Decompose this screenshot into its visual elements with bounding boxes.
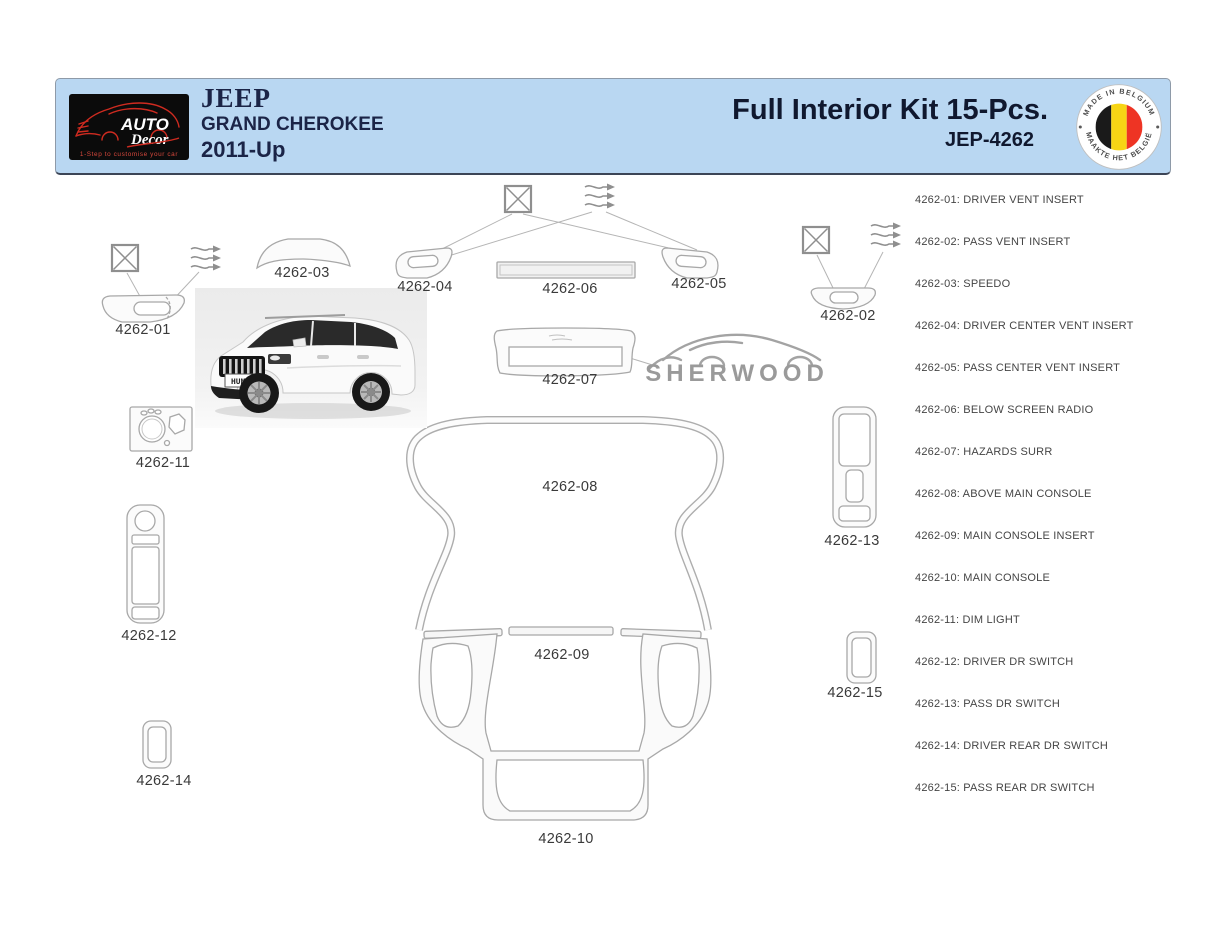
cut-mark-icon [803, 227, 829, 253]
part-label-14: 4262-14 [116, 773, 212, 789]
parts-list-item: 4262-04: DRIVER CENTER VENT INSERT [915, 305, 1134, 347]
parts-list-item: 4262-09: MAIN CONSOLE INSERT [915, 515, 1134, 557]
vehicle-photo: HUM3D [195, 288, 427, 428]
parts-list-item: 4262-07: HAZARDS SURR [915, 431, 1134, 473]
part-label-03: 4262-03 [254, 265, 350, 281]
part-label-12: 4262-12 [101, 628, 197, 644]
part-above-main-console [410, 420, 720, 630]
product-sheet: AUTO Decor 1-Step to customise your car … [0, 0, 1228, 950]
parts-list-item: 4262-13: PASS DR SWITCH [915, 683, 1134, 725]
part-label-11: 4262-11 [115, 455, 211, 471]
parts-list-item: 4262-06: BELOW SCREEN RADIO [915, 389, 1134, 431]
part-dim-light [130, 407, 192, 451]
part-pass-vent-insert [811, 288, 875, 309]
part-pass-rear-door-switch [847, 632, 876, 683]
part-driver-center-vent-insert [396, 248, 452, 278]
front-wheel-icon [239, 373, 279, 413]
part-driver-door-switch [127, 505, 164, 623]
part-speedo [257, 239, 350, 268]
rear-wheel-icon [352, 373, 390, 411]
part-label-01: 4262-01 [95, 322, 191, 338]
parts-list-item: 4262-12: DRIVER DR SWITCH [915, 641, 1134, 683]
part-label-07: 4262-07 [522, 372, 618, 388]
parts-list-item: 4262-08: ABOVE MAIN CONSOLE [915, 473, 1134, 515]
parts-list-item: 4262-02: PASS VENT INSERT [915, 221, 1134, 263]
part-label-10: 4262-10 [518, 831, 614, 847]
part-label-04: 4262-04 [377, 279, 473, 295]
part-label-02: 4262-02 [800, 308, 896, 324]
part-pass-center-vent-insert [662, 248, 718, 278]
part-label-09: 4262-09 [514, 647, 610, 663]
cut-mark-icon [505, 186, 531, 212]
part-label-08: 4262-08 [522, 479, 618, 495]
watermark-sherwood: SHERWOOD [645, 335, 829, 387]
parts-list-item: 4262-05: PASS CENTER VENT INSERT [915, 347, 1134, 389]
cut-mark-icon [112, 245, 138, 271]
part-hazards-surround [494, 328, 635, 376]
part-label-13: 4262-13 [804, 533, 900, 549]
parts-list-item: 4262-03: SPEEDO [915, 263, 1134, 305]
watermark-text: SHERWOOD [645, 360, 829, 387]
car-illustration: HUM3D [195, 288, 427, 428]
part-label-15: 4262-15 [807, 685, 903, 701]
parts-list-item: 4262-11: DIM LIGHT [915, 599, 1134, 641]
parts-list-item: 4262-14: DRIVER REAR DR SWITCH [915, 725, 1134, 767]
parts-list-item: 4262-01: DRIVER VENT INSERT [915, 179, 1134, 221]
part-below-screen-radio [497, 262, 635, 278]
parts-list-item: 4262-15: PASS REAR DR SWITCH [915, 767, 1134, 809]
part-driver-rear-door-switch [143, 721, 171, 768]
airflow-icon [871, 223, 901, 248]
airflow-icon [191, 246, 221, 271]
parts-list: 4262-01: DRIVER VENT INSERT 4262-02: PAS… [915, 179, 1134, 809]
airflow-icon [585, 184, 615, 209]
part-label-05: 4262-05 [651, 276, 747, 292]
parts-list-item: 4262-10: MAIN CONSOLE [915, 557, 1134, 599]
part-driver-vent-insert [102, 295, 184, 322]
part-label-06: 4262-06 [522, 281, 618, 297]
part-pass-door-switch [833, 407, 876, 527]
